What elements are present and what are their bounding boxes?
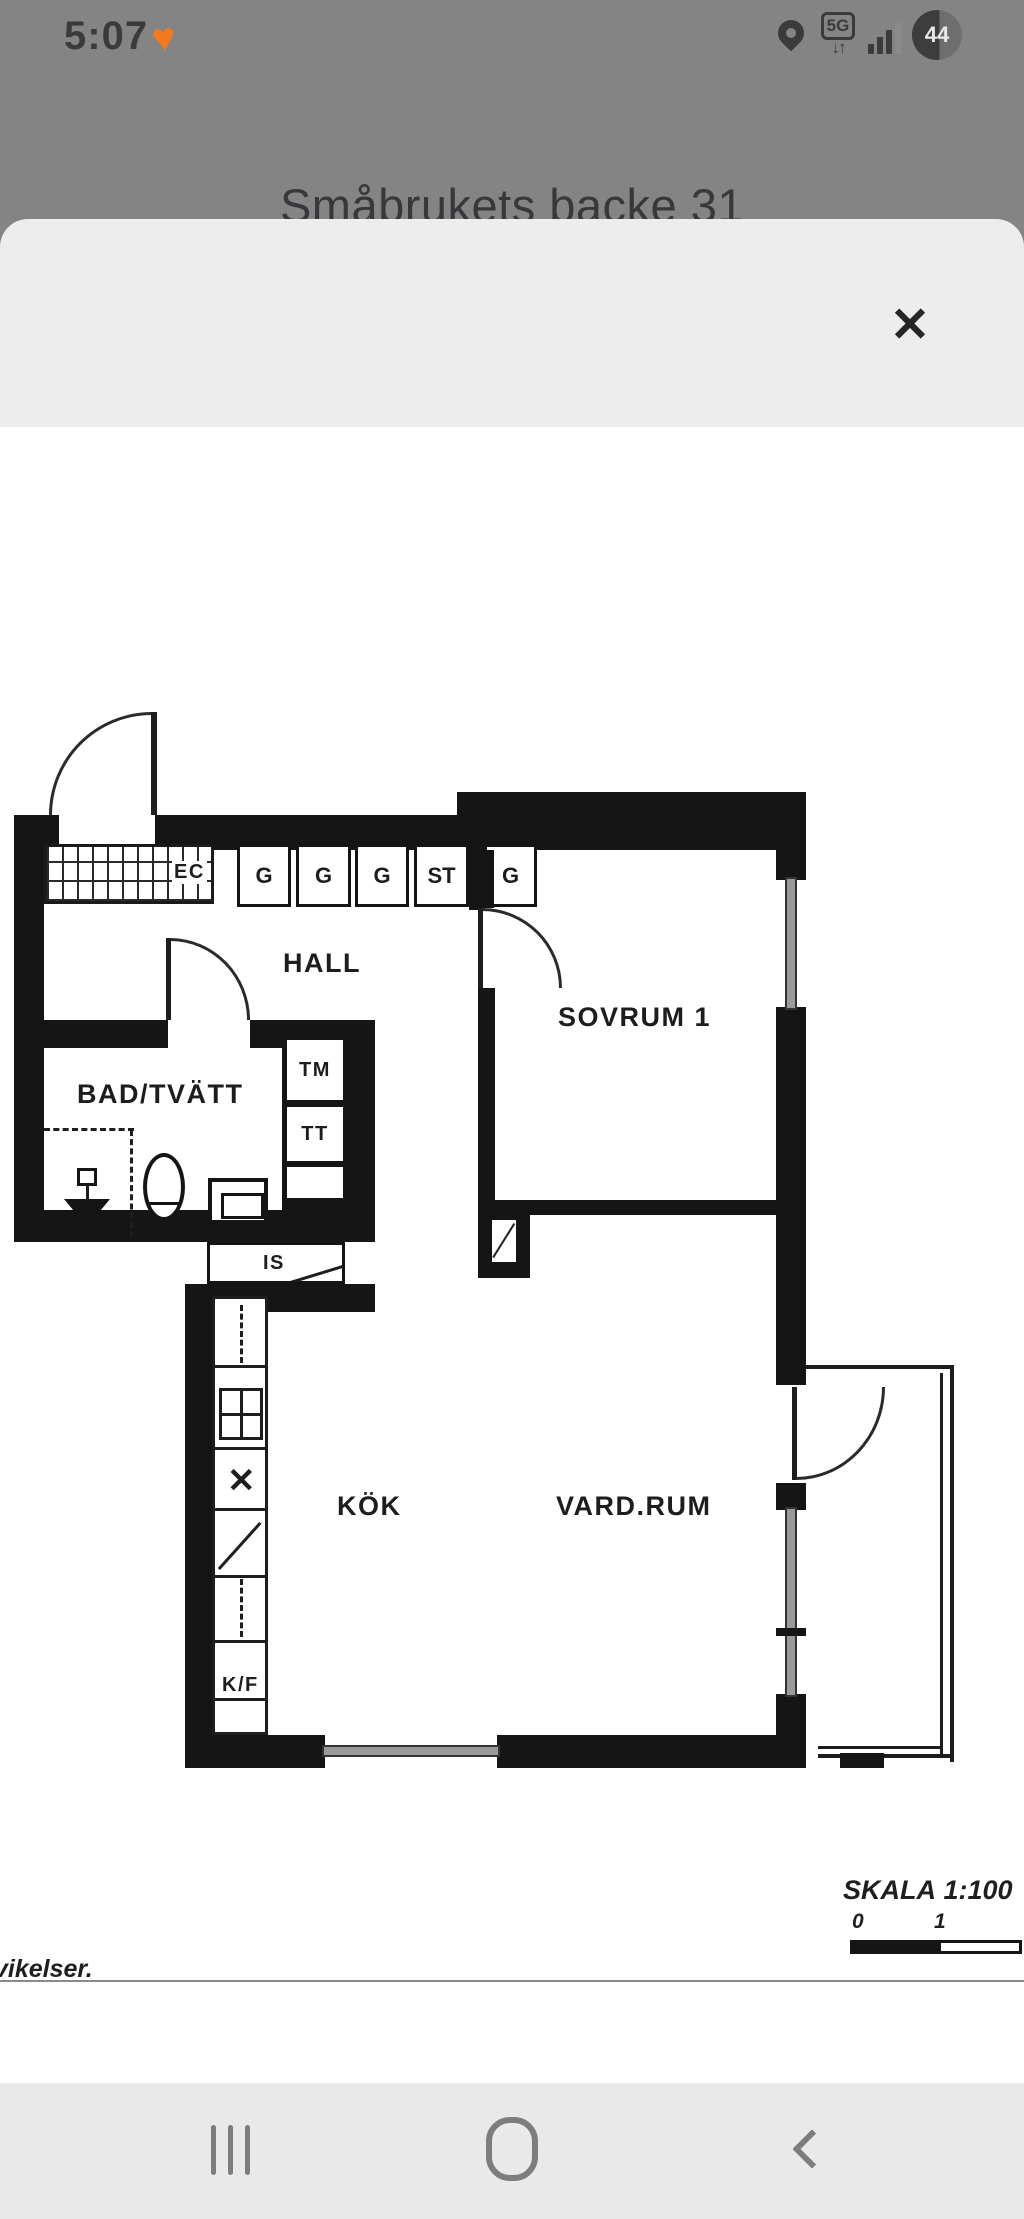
label-tm: TM (299, 1059, 331, 1082)
floor-drain-icon (86, 1186, 89, 1199)
entrance-door-arc (49, 712, 152, 815)
toilet-icon (143, 1153, 185, 1221)
balcony-outline (950, 1365, 954, 1762)
label-sovrum: SOVRUM 1 (558, 1002, 711, 1033)
scale-bar (850, 1940, 938, 1954)
navigation-bar (0, 2083, 1024, 2219)
floor-drain-icon (64, 1199, 110, 1227)
wall-segment (776, 850, 806, 877)
signal-bars-icon (868, 22, 908, 54)
wall-segment (457, 792, 806, 850)
shower-boundary (130, 1130, 133, 1237)
bathroom-door-leaf (166, 938, 171, 1020)
closet-g1: G (237, 844, 291, 907)
label-bad: BAD/TVÄTT (77, 1079, 243, 1110)
scale-bar (938, 1940, 1022, 1954)
sovrum-window (776, 877, 806, 1010)
balcony-outline (806, 1365, 954, 1369)
wall-segment (44, 1020, 168, 1048)
balcony-outline (818, 1754, 954, 1758)
network-5g-icon: 5G ↓↑ (816, 12, 860, 58)
closet-g3: G (355, 844, 409, 907)
sink-cross-icon: ✕ (227, 1461, 256, 1501)
stove-icon (219, 1388, 263, 1440)
scale-value: 1:100 (944, 1875, 1013, 1905)
closet-st: ST (414, 844, 469, 907)
scale-tick-1: 1 (934, 1910, 946, 1934)
wall-segment (478, 850, 494, 908)
sovrum-door-arc (482, 908, 562, 988)
balcony-door-arc (796, 1387, 885, 1480)
location-icon (773, 15, 810, 52)
label-kok: KÖK (337, 1491, 402, 1522)
back-button[interactable] (782, 2121, 838, 2177)
floorplan-sheet-header: ✕ (0, 219, 1024, 427)
shower-boundary (44, 1128, 134, 1131)
hemnet-heart-icon: ♥ (150, 15, 178, 62)
floor-drain-icon (77, 1168, 97, 1186)
balcony-outline (818, 1746, 940, 1749)
shaft-box (492, 1220, 516, 1262)
closet-g2: G (296, 844, 351, 907)
vardagsrum-window (776, 1507, 806, 1697)
sovrum-door-leaf (478, 908, 483, 988)
label-kf: K/F (222, 1674, 259, 1697)
recents-button[interactable] (205, 2123, 261, 2179)
tt-box: TT (287, 1107, 343, 1161)
kitchen-counter: ✕ K/F (212, 1296, 268, 1735)
wall-segment (478, 1200, 806, 1215)
drawing-frame-line (0, 1980, 1024, 1982)
label-is: IS (263, 1252, 285, 1275)
wall-segment (776, 1010, 806, 1385)
scale-tick-0: 0 (852, 1910, 864, 1934)
wall-segment (250, 1020, 282, 1048)
entrance-door-leaf (151, 712, 157, 815)
scale-label: SKALA 1:100 (843, 1875, 1013, 1906)
kok-window (322, 1735, 500, 1768)
wall-segment (185, 1284, 212, 1768)
clock: 5:07 (64, 14, 148, 59)
tm-box: TM (287, 1040, 343, 1100)
dishwasher-icon (218, 1522, 262, 1570)
close-icon[interactable]: ✕ (880, 295, 940, 355)
wall-segment (14, 815, 44, 1242)
phone-screen: 5:07 ♥ 5G ↓↑ 44 Småbrukets backe 31 ✕ EC (0, 0, 1024, 2219)
status-bar: 5:07 ♥ 5G ↓↑ 44 (0, 0, 1024, 127)
bathroom-door-arc (170, 938, 250, 1020)
floor-plan-image[interactable]: EC G G G ST G (0, 427, 1024, 2083)
label-vardagsrum: VARD.RUM (556, 1491, 712, 1522)
battery-indicator: 44 (912, 10, 962, 60)
label-tt: TT (301, 1123, 328, 1146)
sink-icon (208, 1178, 268, 1224)
wall-segment (840, 1753, 884, 1768)
home-button[interactable] (486, 2117, 538, 2181)
wall-segment (478, 988, 495, 1203)
balcony-outline (940, 1373, 943, 1754)
wall-segment (776, 1483, 806, 1507)
label-hall: HALL (283, 948, 361, 979)
closet-shelf-box (287, 1167, 343, 1198)
label-ec: EC (172, 861, 207, 884)
